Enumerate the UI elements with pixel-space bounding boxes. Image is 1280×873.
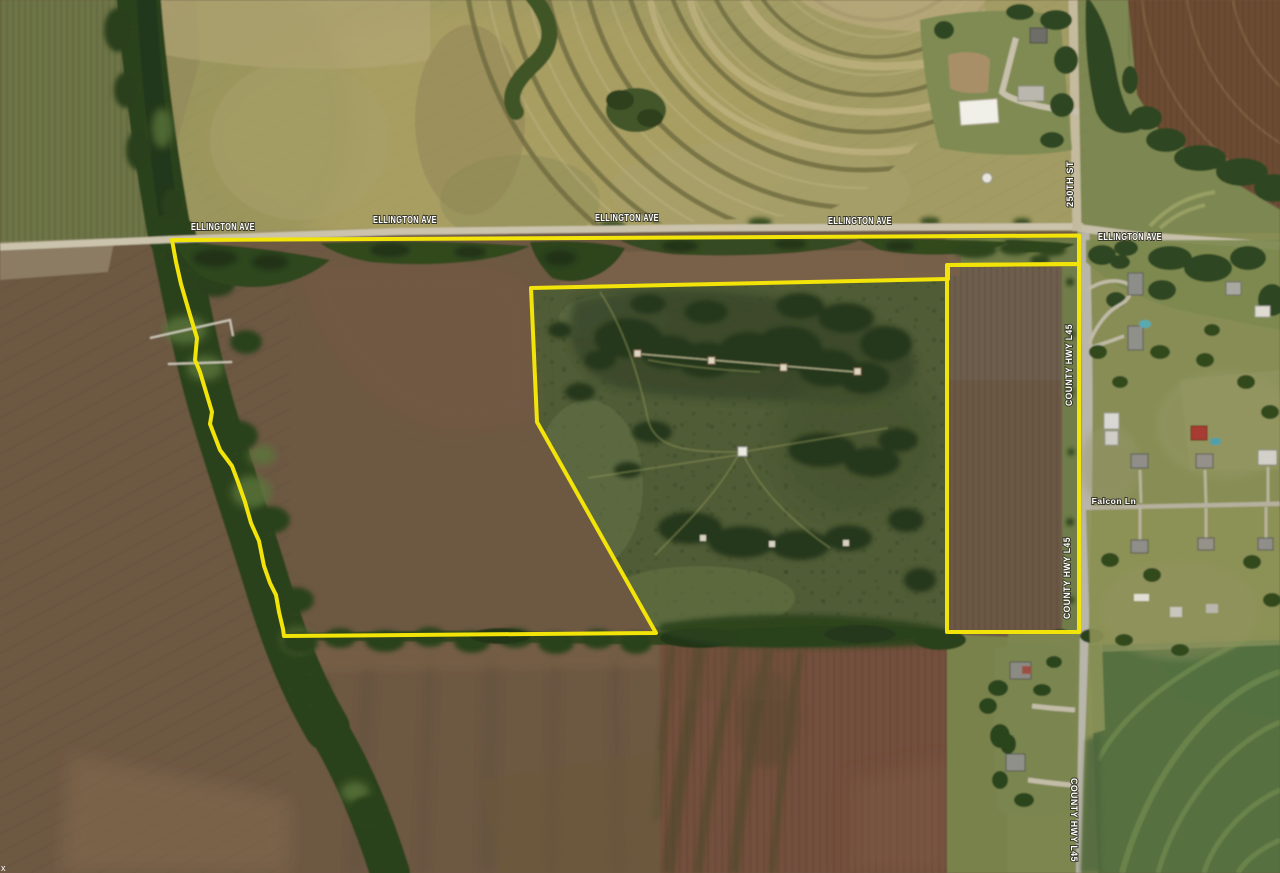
svg-text:ELLINGTON AVE: ELLINGTON AVE [373, 215, 437, 226]
svg-text:x: x [1, 863, 6, 873]
svg-text:Falcon Ln: Falcon Ln [1092, 496, 1137, 506]
svg-text:ELLINGTON AVE: ELLINGTON AVE [191, 222, 255, 233]
svg-text:COUNTY HWY L45: COUNTY HWY L45 [1062, 537, 1072, 619]
svg-text:COUNTY HWY L45: COUNTY HWY L45 [1064, 324, 1074, 406]
svg-text:ELLINGTON AVE: ELLINGTON AVE [595, 213, 659, 224]
svg-text:250TH ST: 250TH ST [1065, 161, 1075, 207]
svg-text:ELLINGTON AVE: ELLINGTON AVE [1098, 232, 1162, 243]
svg-text:COUNTY HWY L45: COUNTY HWY L45 [1069, 778, 1079, 862]
svg-text:ELLINGTON AVE: ELLINGTON AVE [828, 216, 892, 227]
